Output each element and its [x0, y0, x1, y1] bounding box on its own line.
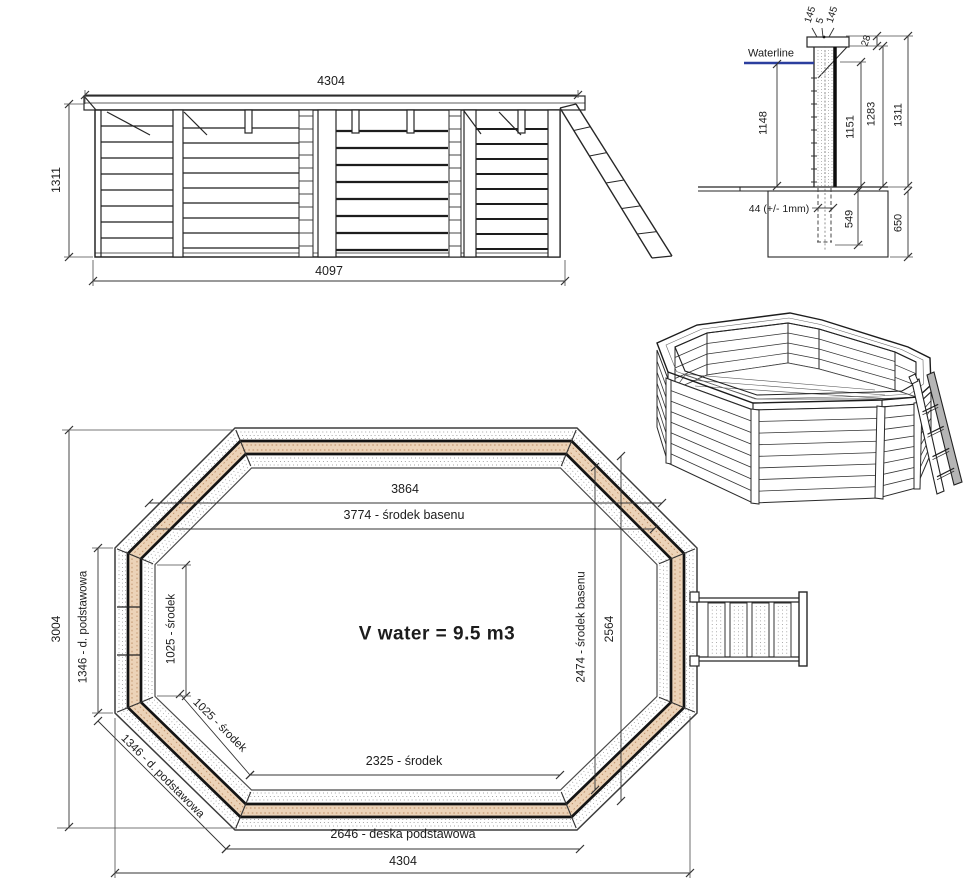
dim-plan-inner-height: 2564: [603, 616, 615, 643]
dim-base-board-left: 1346 - d. podstawowa: [78, 571, 90, 684]
plan-ladder-steps: [690, 592, 807, 666]
dim-plank-thickness: 44 (+/- 1mm): [749, 204, 809, 215]
dim-plan-outer-width: 4304: [389, 855, 417, 868]
dim-wall-height: 1283: [867, 102, 878, 126]
dim-center-left: 1025 - środek: [166, 594, 178, 664]
dim-plan-outer-top-width: 3864: [391, 483, 419, 496]
dim-plan-center-height: 2474 - środek basenu: [576, 571, 588, 682]
dim-plan-center-width: 3774 - środek basenu: [344, 509, 465, 522]
dim-side-top-width: 4304: [317, 75, 345, 88]
water-volume-label: V water = 9.5 m3: [359, 625, 515, 644]
dim-post-embed: 549: [845, 210, 856, 228]
waterline-label: Waterline: [748, 49, 794, 60]
dim-side-height: 1311: [50, 167, 62, 193]
dim-foundation-depth: 650: [894, 214, 905, 232]
dim-total-height: 1311: [894, 103, 905, 127]
dim-center-bottom: 2325 - środek: [366, 755, 442, 768]
dim-water-height: 1148: [759, 111, 770, 135]
isometric-view: [657, 313, 962, 504]
dim-base-board-bottom: 2646 - deska podstawowa: [330, 828, 475, 841]
dim-wall-inner-height: 1151: [846, 115, 857, 139]
side-elevation-view: [84, 96, 672, 258]
dim-plan-outer-height: 3004: [50, 616, 62, 643]
pool-technical-drawing-page: 4304 1311 4097 Waterline 145 5 145 28 11…: [0, 0, 980, 892]
dim-side-bottom-width: 4097: [315, 265, 343, 278]
